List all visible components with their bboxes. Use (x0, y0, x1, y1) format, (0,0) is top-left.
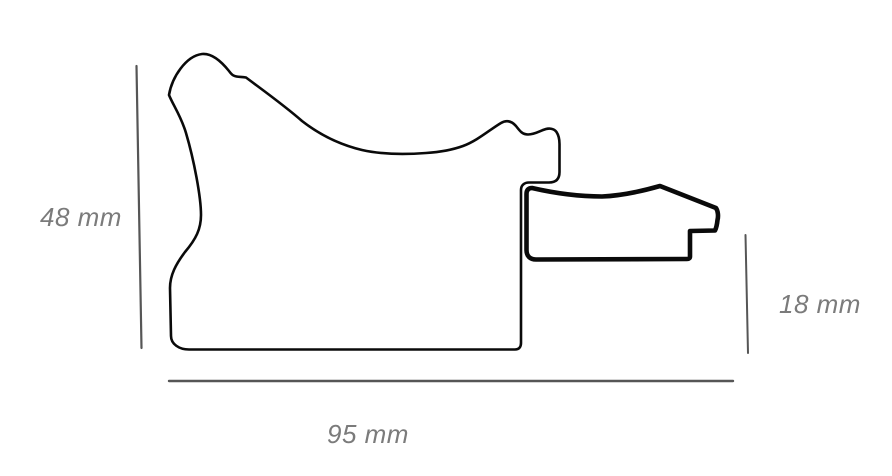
depth-dimension-line (746, 235, 749, 353)
height-dimension-line (137, 66, 142, 348)
moulding-diagram-drawing (0, 0, 892, 476)
moulding-cross-section-diagram: 48 mm 95 mm 18 mm (0, 0, 892, 476)
small-profile-outline (527, 186, 719, 260)
width-dimension-label: 95 mm (327, 421, 409, 447)
height-dimension-label: 48 mm (40, 204, 122, 230)
large-profile-outline (169, 54, 560, 350)
depth-dimension-label: 18 mm (779, 291, 861, 317)
